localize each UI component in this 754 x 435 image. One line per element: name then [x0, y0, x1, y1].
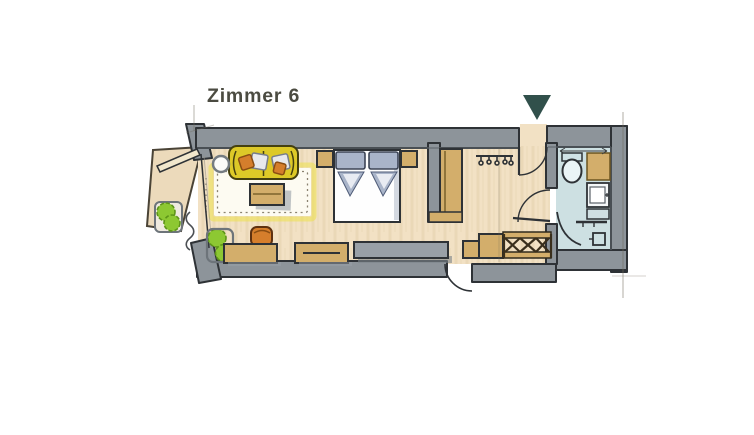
- pillow-left: [336, 152, 365, 169]
- balcony-plant-icon: [164, 215, 180, 231]
- connecting-door-swing: [445, 264, 472, 291]
- luggage-rack-top-bar: [503, 232, 551, 238]
- floor-plan-page: Zimmer 6: [0, 0, 754, 435]
- bathroom-vanity: [587, 153, 610, 180]
- side-table: [213, 156, 229, 172]
- bench-step: [463, 241, 479, 258]
- toilet-icon: [563, 160, 582, 183]
- luggage-rack-bottom-bar: [503, 252, 551, 258]
- floor-plan-drawing: [0, 0, 754, 435]
- sideboard: [224, 244, 277, 263]
- wall-bathroom-upper: [546, 143, 557, 188]
- cushion-orange: [273, 162, 286, 175]
- bath-shelf: [587, 209, 609, 219]
- cushion-orange: [238, 154, 254, 170]
- pillow-right: [369, 152, 398, 169]
- media-console: [354, 242, 452, 263]
- nightstand-right: [401, 151, 417, 167]
- wardrobe-shelf: [429, 212, 462, 222]
- wall-bathroom-bottom: [546, 250, 627, 270]
- wardrobe: [440, 149, 462, 222]
- wall-divider: [428, 143, 440, 222]
- washbasin-inner: [590, 187, 605, 203]
- entrance-marker-triangle-down-icon: [523, 95, 551, 120]
- nightstand-left: [317, 151, 333, 167]
- wall-hall-bottom: [472, 264, 556, 282]
